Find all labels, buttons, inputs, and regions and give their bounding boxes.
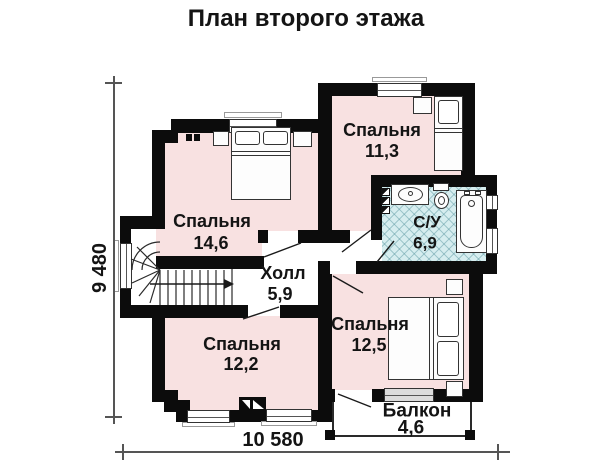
toilet-bowl [434, 192, 449, 209]
wall-hall-top-a [258, 230, 268, 243]
single-bed [434, 96, 463, 171]
room-area-hall: 5,9 [267, 285, 292, 303]
nightstand [446, 381, 463, 397]
wall-left-bedroom-4 [152, 316, 165, 392]
room-name-bedroom-2: Спальня [343, 121, 421, 139]
room-area-bedroom-3: 12,5 [351, 336, 386, 354]
flue-block-icon [186, 134, 192, 141]
wall-stair-bottom [120, 305, 248, 318]
wall-hall-top-b [298, 230, 318, 243]
nightstand [213, 131, 229, 146]
wall-hall-bed3-a [318, 261, 330, 274]
room-name-bedroom-4: Спальня [203, 335, 281, 353]
floor-plan-canvas: План второго этажа [0, 0, 600, 471]
room-area-balcony: 4,6 [398, 419, 424, 438]
dimension-line-horizontal [115, 451, 510, 453]
window-bedroom-4-right [266, 409, 312, 422]
dimension-tick [497, 444, 499, 460]
wall-divider-bed1-bed2 [318, 83, 332, 243]
pillow-icon [263, 131, 288, 145]
wall-bathroom-bottom [371, 261, 497, 274]
sink [391, 184, 429, 205]
stair-direction-arrow [150, 279, 234, 289]
blanket-line [232, 151, 290, 152]
pillow-icon [235, 131, 260, 145]
bathtub-faucet-icon [475, 191, 481, 195]
window-bathroom-upper [486, 195, 498, 210]
dimension-tick [105, 82, 122, 84]
blanket-line [429, 298, 430, 379]
wall-hall-bed3-b [356, 261, 373, 274]
door-swing-bedroom-1 [264, 243, 301, 257]
wall-right-bedroom-2 [461, 83, 475, 178]
double-bed [231, 127, 291, 200]
pillow-icon [438, 100, 459, 124]
pillow-icon [437, 302, 459, 337]
window-bedroom-2 [377, 83, 422, 97]
vent-shaft-icon [381, 188, 390, 196]
room-name-hall: Холл [260, 264, 305, 282]
toilet-bowl-inner [438, 196, 445, 205]
wall-left-upper [152, 141, 165, 225]
window-staircase [120, 243, 132, 289]
nightstand [293, 131, 312, 147]
vent-shaft-icon [381, 206, 390, 214]
blanket-line [435, 128, 462, 129]
bathtub-drain-icon [468, 200, 475, 207]
room-name-bedroom-1: Спальня [173, 212, 251, 230]
dimension-height-label: 9 480 [90, 243, 110, 293]
vent-shaft-icon [381, 197, 390, 205]
window-sill [224, 112, 282, 118]
dimension-width-label: 10 580 [242, 430, 303, 450]
toilet-tank [433, 183, 449, 191]
room-area-bedroom-2: 11,3 [365, 142, 399, 160]
room-area-bathroom: 6,9 [413, 235, 437, 252]
room-name-bedroom-3: Спальня [331, 315, 409, 333]
page-title: План второго этажа [188, 7, 425, 31]
dimension-tick [122, 444, 124, 460]
pillow-icon [437, 341, 459, 376]
wall-hall-bottom-right [280, 305, 322, 318]
window-bathroom-lower [486, 228, 498, 254]
nightstand [413, 97, 432, 114]
bathtub-faucet-icon [464, 191, 470, 195]
blanket-line [435, 132, 462, 133]
sink-faucet-icon [408, 191, 413, 196]
bathtub [456, 190, 487, 253]
blanket-line [232, 155, 290, 156]
window-bedroom-4-left [187, 410, 230, 423]
dimension-tick [105, 416, 122, 418]
wall-stair-top [156, 256, 264, 269]
room-area-bedroom-1: 14,6 [193, 234, 228, 252]
balcony-post [465, 430, 475, 440]
dimension-line-vertical [113, 76, 115, 424]
wall-bottom-bedroom-3-a [318, 389, 335, 402]
room-name-bathroom: С/У [413, 214, 441, 231]
flue-block-icon [194, 134, 200, 141]
wall-right-bedroom-3 [469, 274, 483, 402]
balcony-post [325, 430, 335, 440]
double-bed [388, 297, 464, 380]
wall-hall-top-c [318, 230, 350, 243]
window-sill [372, 77, 427, 82]
room-area-bedroom-4: 12,2 [223, 355, 258, 373]
door-swing-balcony [338, 394, 371, 407]
nightstand [446, 279, 463, 295]
blanket-line [433, 298, 434, 379]
bedroom-2-floor-strip [331, 95, 373, 231]
